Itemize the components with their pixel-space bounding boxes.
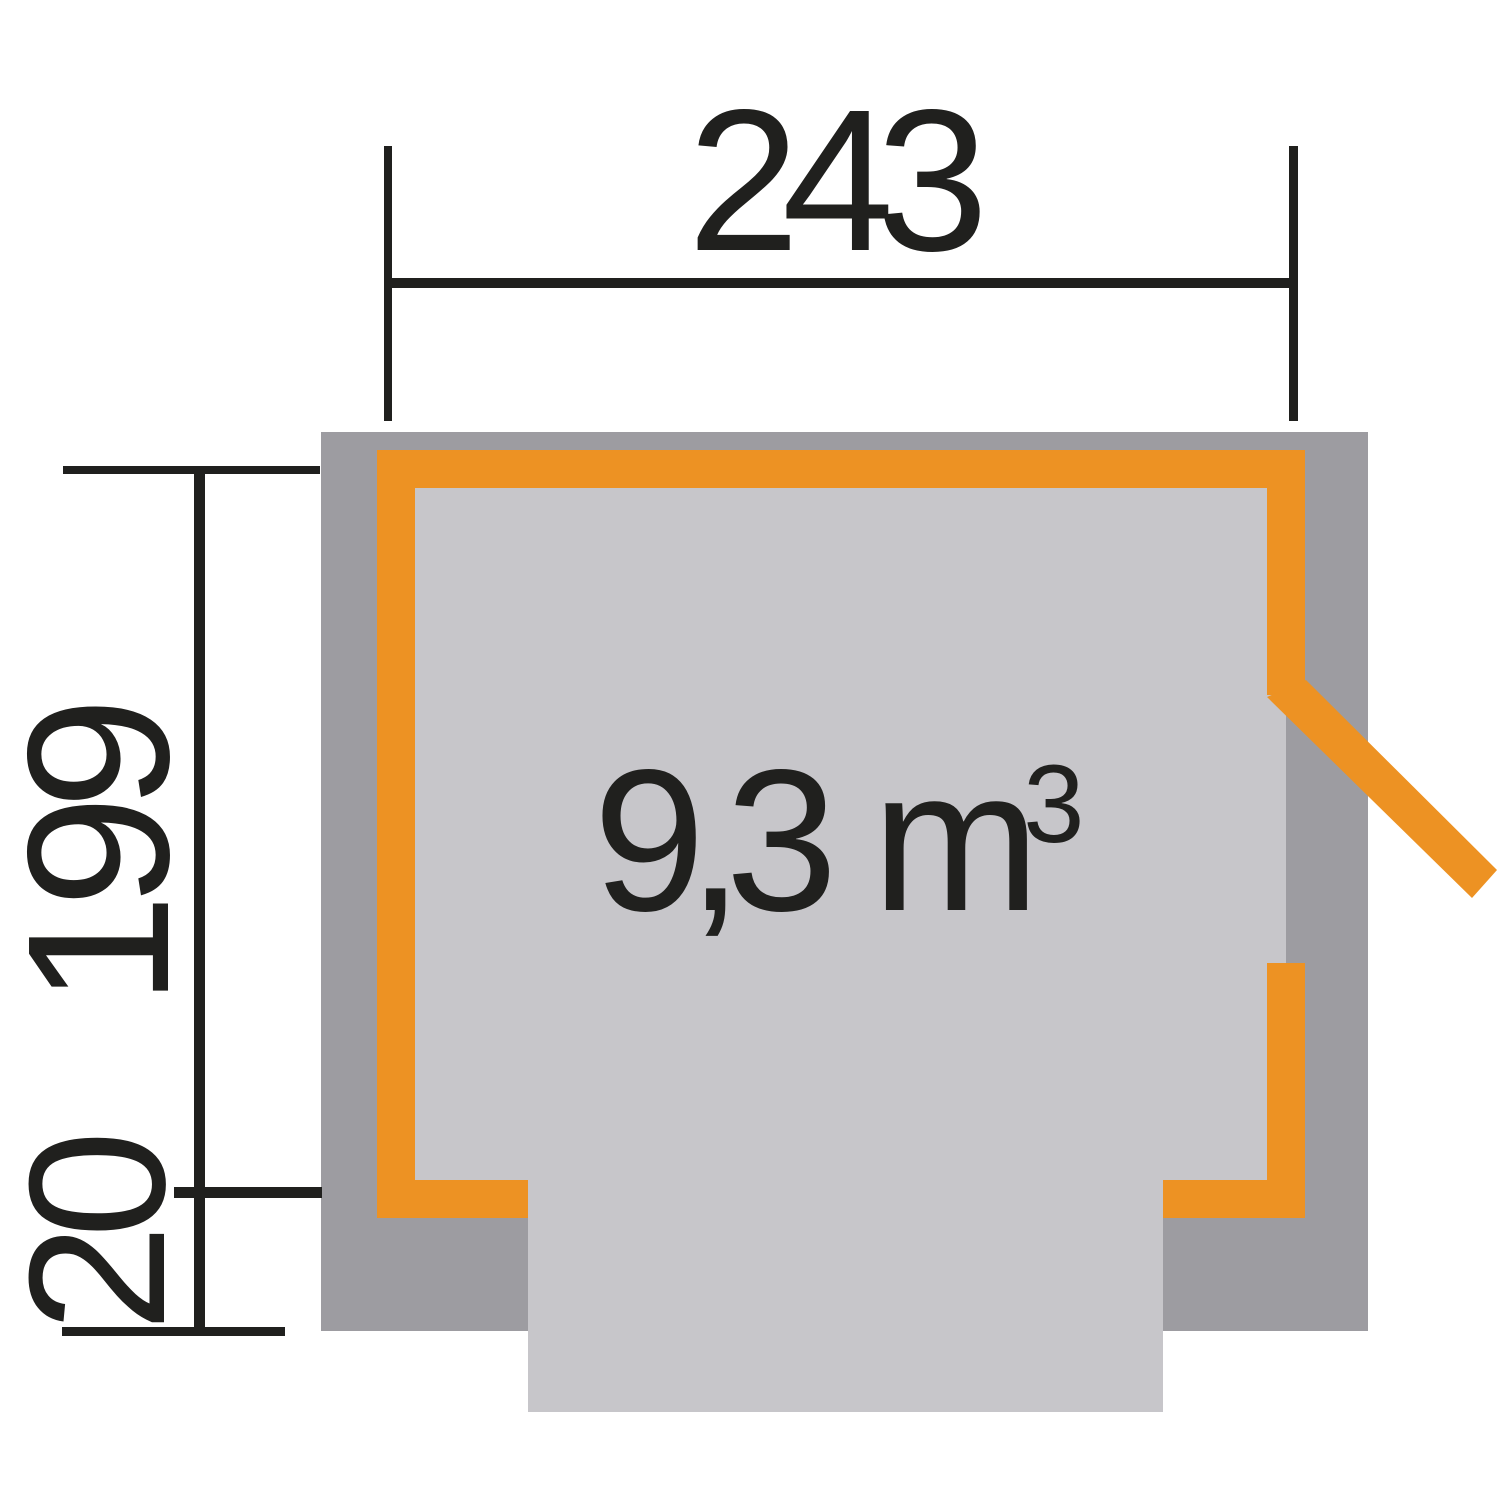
svg-text:9,3 m3: 9,3 m3: [593, 727, 1084, 953]
svg-text:199: 199: [0, 706, 211, 1006]
svg-text:20: 20: [0, 1137, 206, 1332]
svg-text:243: 243: [687, 67, 980, 293]
